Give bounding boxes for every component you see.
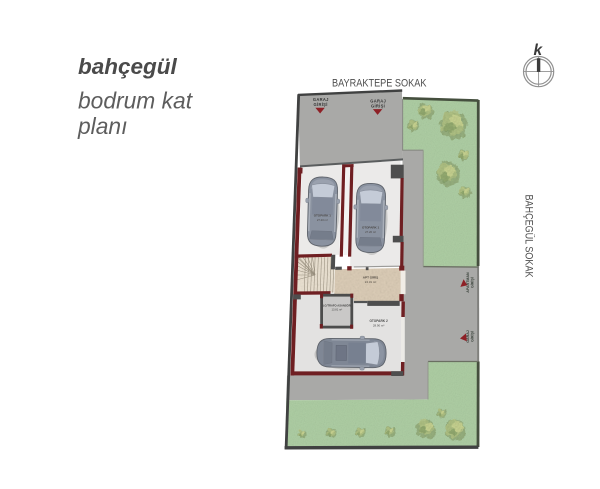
svg-text:27.20 m²: 27.20 m²: [317, 218, 328, 222]
svg-text:BAHÇEGÜL SOKAK: BAHÇEGÜL SOKAK: [523, 195, 535, 279]
svg-text:APARTMAN: APARTMAN: [466, 272, 470, 293]
svg-text:GİRİŞİ: GİRİŞİ: [471, 277, 475, 288]
svg-text:APT GİRİŞ: APT GİRİŞ: [363, 275, 378, 280]
svg-text:GİRİŞİ: GİRİŞİ: [471, 331, 475, 342]
svg-text:28.90 m²: 28.90 m²: [373, 324, 384, 328]
svg-text:GİRİŞİ: GİRİŞİ: [314, 102, 328, 107]
svg-text:OTOPARK 2: OTOPARK 2: [369, 319, 388, 323]
svg-text:GARAJ: GARAJ: [313, 97, 329, 102]
svg-text:BAYRAKTEPE SOKAK: BAYRAKTEPE SOKAK: [332, 78, 427, 90]
svg-text:27.20 m²: 27.20 m²: [365, 230, 376, 234]
svg-text:planı: planı: [77, 113, 127, 139]
svg-text:bodrum kat: bodrum kat: [78, 88, 194, 114]
svg-text:OTOPARK 1: OTOPARK 1: [314, 213, 332, 217]
svg-text:OTOPARK 1: OTOPARK 1: [362, 226, 380, 230]
svg-text:GARAJ: GARAJ: [370, 98, 386, 103]
svg-text:bahçegül: bahçegül: [78, 54, 178, 79]
svg-text:GİRİŞİ: GİRİŞİ: [371, 103, 385, 108]
svg-text:k: k: [533, 42, 543, 59]
svg-text:24.31 m²: 24.31 m²: [365, 280, 376, 284]
